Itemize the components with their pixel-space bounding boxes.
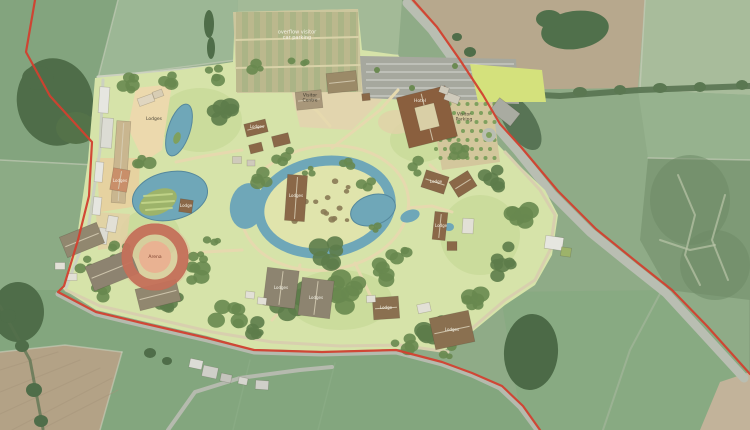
outbuilding (247, 160, 255, 166)
barn-east (544, 235, 564, 250)
orchard-trees (488, 147, 492, 151)
orchard-trees (461, 129, 465, 133)
garden-plot (560, 247, 571, 257)
label-lodges-west: Lodges (113, 178, 127, 183)
car-park-tree (374, 67, 380, 73)
lodge-building (447, 242, 457, 251)
hedgerow-trees (614, 85, 626, 95)
overflow-parking-rows (272, 12, 278, 92)
woodland-west (22, 66, 54, 90)
site-trees (374, 222, 382, 229)
orchard-trees (443, 147, 447, 151)
site-trees (214, 300, 230, 314)
roadside-trees (452, 33, 462, 41)
label-visitor-parking: VisitorParking (456, 112, 473, 123)
outbuilding (55, 263, 65, 270)
overflow-parking-rows (314, 12, 320, 92)
roadside-trees (464, 47, 476, 57)
site-trees (197, 251, 204, 257)
service-building (98, 87, 110, 114)
site-trees (308, 166, 314, 171)
site-trees (214, 65, 223, 73)
site-trees (302, 170, 308, 175)
service-building (92, 197, 102, 216)
label-lodges-north: Lodges (250, 124, 264, 129)
hedgerow-trees (694, 82, 706, 92)
mound-trees (224, 104, 239, 117)
orchard-trees (434, 147, 438, 151)
overflow-parking-rows (290, 12, 296, 92)
glade-trees (346, 185, 351, 189)
site-trees (127, 86, 136, 94)
label-arena: Arena (148, 254, 161, 260)
site-trees (404, 333, 416, 344)
site-trees (470, 293, 484, 305)
overflow-parking-rows (302, 12, 308, 92)
site-trees (277, 157, 288, 166)
site-trees (449, 151, 459, 160)
overflow-parking-rows (320, 12, 326, 92)
hedgerow-trees (573, 87, 587, 97)
label-hotel: Hotel (414, 98, 426, 104)
site-trees (390, 252, 404, 264)
site-trees (211, 74, 225, 86)
orchard-trees (475, 102, 479, 106)
site-trees (391, 339, 400, 346)
label-lodges-beach: Lodges (146, 116, 163, 122)
outbuilding (462, 218, 474, 234)
overflow-parking-rows (236, 12, 242, 92)
hedgerow-trees (26, 383, 42, 397)
site-trees (186, 275, 197, 285)
car-park-tree (409, 85, 415, 91)
orchard-trees (484, 156, 488, 160)
orchard-trees (457, 138, 461, 142)
woodland-east (494, 258, 510, 272)
orchard-trees (452, 111, 456, 115)
orchard-trees (466, 138, 470, 142)
overflow-parking-rows (248, 12, 254, 92)
outbuilding (257, 297, 267, 305)
outbuilding (233, 157, 242, 164)
label-visitor-centre: VisitorCentre (302, 93, 317, 104)
orchard-trees (479, 111, 483, 115)
outbuilding (366, 295, 375, 303)
site-trees (109, 241, 120, 251)
paddock-yellow (470, 64, 546, 102)
orchard-trees (466, 102, 470, 106)
farmstead-building (255, 380, 269, 390)
site-trees (417, 328, 432, 341)
hedgerow-trees (653, 83, 667, 93)
woodland-central-south (350, 276, 366, 290)
site-trees (329, 244, 343, 256)
label-lodge-east-2: Lodge (435, 223, 448, 228)
orchard-trees (470, 147, 474, 151)
kiosk-building (362, 93, 371, 101)
site-trees (233, 319, 244, 329)
tree-row (204, 10, 214, 38)
roundabout-island (486, 132, 492, 138)
orchard-trees (493, 120, 497, 124)
glade-trees (331, 216, 337, 221)
site-trees (461, 145, 470, 153)
site-trees (250, 59, 261, 69)
site-trees (203, 236, 211, 243)
site-trees (344, 158, 353, 166)
site-trees (285, 147, 294, 155)
site-trees (188, 252, 199, 261)
woodland-east (491, 165, 503, 176)
overflow-parking-rows (284, 12, 290, 92)
site-trees (378, 273, 394, 287)
label-lodges-southeast: Lodges (445, 327, 459, 332)
woodland-east (478, 169, 492, 181)
site-trees (250, 176, 265, 189)
glade-trees (313, 200, 318, 205)
overflow-parking-rows (260, 12, 266, 92)
farm-trees (162, 357, 172, 365)
overflow-parking-rows (242, 12, 248, 92)
glade-trees (345, 218, 349, 222)
orchard-trees (439, 156, 443, 160)
site-trees (366, 177, 376, 185)
site-trees (167, 79, 177, 88)
overflow-parking-rows (266, 12, 272, 92)
overflow-parking-rows (278, 12, 284, 92)
field-right-mid (638, 90, 750, 160)
orchard-trees (493, 156, 497, 160)
overflow-parking-rows (308, 12, 314, 92)
site-trees (246, 324, 259, 335)
site-trees (439, 351, 448, 359)
site-trees (134, 160, 144, 169)
site-masterplan-aerial-map: overflow visitorcar parkingVisitorParkin… (0, 0, 750, 430)
field-top-right (638, 0, 750, 95)
site-trees (231, 303, 245, 315)
service-building (94, 162, 104, 183)
label-lodges-south-1: Lodges (274, 285, 288, 290)
orchard-trees (475, 138, 479, 142)
woodland-east (502, 242, 514, 253)
hedgerow-trees (0, 309, 16, 323)
site-trees (288, 57, 296, 64)
masterplan-svg: overflow visitorcar parkingVisitorParkin… (0, 0, 750, 430)
site-trees (123, 72, 135, 82)
woodland-east (514, 206, 533, 222)
glade-trees (324, 211, 329, 216)
car-park-tree (452, 63, 458, 69)
site-trees (400, 247, 409, 255)
label-lodge-south-3: Lodge (380, 305, 393, 310)
glade-trees (344, 189, 349, 194)
site-trees (75, 263, 86, 273)
orchard-trees (470, 129, 474, 133)
orchard-trees (479, 147, 483, 151)
site-trees (303, 59, 310, 65)
hedgerow-trees (34, 415, 48, 427)
site-trees (97, 291, 110, 302)
orchard-trees (479, 129, 483, 133)
orchard-trees (484, 120, 488, 124)
site-trees (167, 72, 177, 80)
hedgerow-trees (736, 80, 748, 90)
site-trees (214, 238, 221, 244)
overflow-parking-rows (296, 12, 302, 92)
site-trees (412, 156, 423, 166)
label-lodge-island: Lodge (180, 203, 193, 208)
woodland-top-right (536, 10, 562, 28)
glade-trees (337, 206, 343, 211)
overflow-parking-rows (254, 12, 260, 92)
hedgerow-trees (15, 340, 29, 352)
outbuilding (245, 291, 255, 299)
site-trees (309, 238, 330, 256)
farmstead-building (238, 377, 248, 386)
label-lodge-east-1: Lodge (430, 179, 443, 184)
orchard-trees (475, 156, 479, 160)
orchard-trees (475, 120, 479, 124)
site-trees (205, 67, 213, 74)
tree-row (207, 37, 215, 59)
site-trees (308, 170, 315, 176)
label-lodges-central: Lodges (289, 193, 303, 198)
site-trees (372, 258, 387, 271)
site-trees (208, 313, 225, 328)
site-trees (356, 179, 367, 189)
farm-trees (144, 348, 156, 358)
site-trees (83, 256, 91, 263)
woodland-east (490, 177, 505, 190)
service-building (100, 118, 113, 149)
glade-trees (325, 195, 331, 200)
label-lodges-south-2: Lodges (309, 295, 323, 300)
glade-trees (332, 178, 338, 184)
